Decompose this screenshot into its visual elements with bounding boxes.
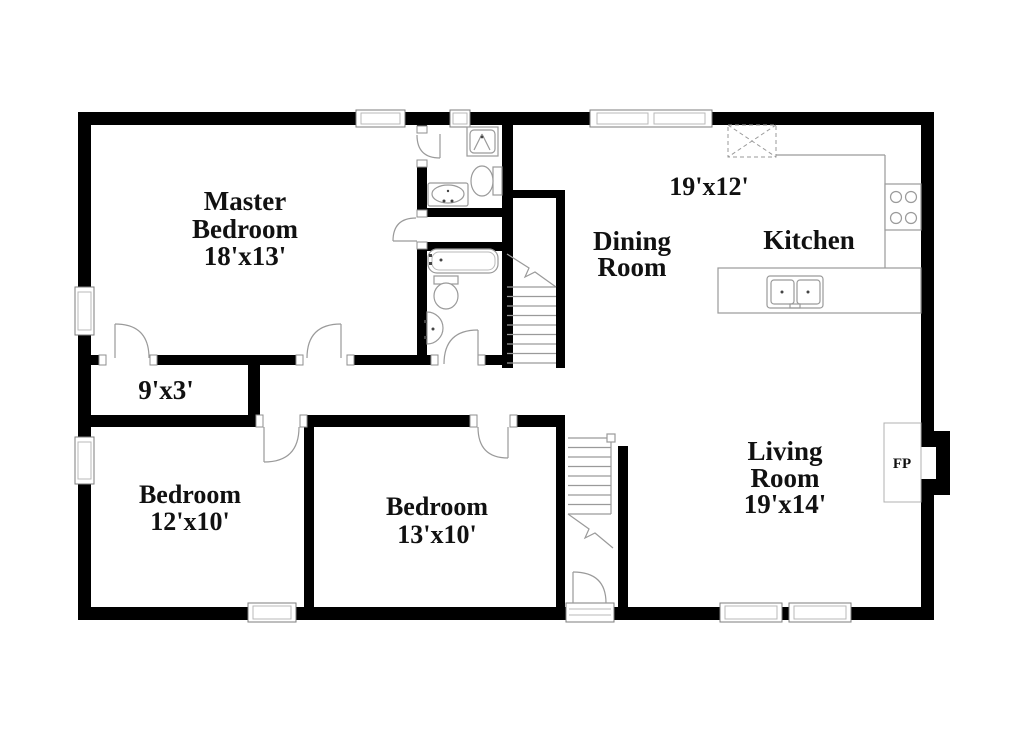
closet-dims: 9'x3' <box>138 375 194 405</box>
wall-living-west <box>618 446 628 607</box>
opening-master-closet <box>417 217 427 242</box>
stair-break-line <box>507 254 556 287</box>
window-left-bedroom2 <box>75 437 94 484</box>
window-left-master <box>75 287 94 335</box>
fireplace-bump-outer <box>936 447 950 479</box>
bedroom3-dims: 13'x10' <box>397 520 476 549</box>
window-top-master <box>356 110 405 127</box>
window-top-dining-double <box>590 110 712 127</box>
master-bath-fixtures <box>428 127 502 206</box>
kitchen-double-sink-icon <box>767 276 823 308</box>
opening-bedroom3 <box>477 415 510 427</box>
bedroom2-dims: 12'x10' <box>150 507 229 536</box>
wall-bedroom3-east <box>556 415 565 607</box>
opening-master-door-a <box>106 355 150 365</box>
window-bottom-bedroom2 <box>248 603 296 622</box>
fireplace-bump-bottom <box>921 479 950 495</box>
wall-bedrooms-divider <box>304 427 314 607</box>
fireplace: FP <box>884 423 921 502</box>
bathtub-icon <box>428 249 498 273</box>
floor-plan-drawing: FP Master Bedroom 18'x13' 19'x12' Dining… <box>0 0 1024 744</box>
toilet-icon <box>471 166 502 196</box>
front-door-threshold <box>566 603 614 622</box>
shower-icon <box>467 127 498 156</box>
refrigerator-dashed-box-icon <box>728 125 776 157</box>
master-door-b-swing <box>307 324 341 358</box>
bedroom2-door-swing <box>264 427 299 462</box>
basement-stairs <box>507 254 556 363</box>
living-room-label-line1: Living <box>747 436 823 466</box>
wall-bath1-south <box>417 208 513 217</box>
wall-exterior-top <box>78 112 934 125</box>
kitchen-fixtures <box>718 125 921 313</box>
stove-cooktop-icon <box>885 184 921 230</box>
master-bedroom-label-line2: Bedroom <box>192 214 299 244</box>
wall-stair-enclosure-east <box>556 190 565 368</box>
master-door-a-swing <box>115 324 149 358</box>
newel-post <box>607 434 615 442</box>
bedroom3-label: Bedroom <box>386 492 488 521</box>
stair-break-line <box>568 514 613 548</box>
window-bottom-living-2 <box>789 603 851 622</box>
wall-exterior-right-lower <box>921 495 934 620</box>
bedroom2-label: Bedroom <box>139 480 241 509</box>
hall-bath-fixtures <box>424 249 498 344</box>
wall-stair-enclosure-top <box>502 190 565 198</box>
master-bedroom-label-line1: Master <box>204 186 286 216</box>
window-bottom-living-1 <box>720 603 782 622</box>
vanity-sink-icon <box>428 183 468 206</box>
entry-stairs <box>568 434 615 548</box>
wall-exterior-left <box>78 112 91 620</box>
master-closet-door-swing <box>393 218 417 241</box>
pedestal-sink-icon <box>424 312 443 344</box>
fireplace-bump-top <box>921 431 950 447</box>
window-top-bath <box>450 110 470 127</box>
opening-bedroom2 <box>263 415 300 427</box>
kitchen-label: Kitchen <box>763 225 855 255</box>
floor-plan: FP Master Bedroom 18'x13' 19'x12' Dining… <box>0 0 1024 744</box>
bedroom3-door-swing <box>478 427 508 458</box>
living-room-dims: 19'x14' <box>744 489 827 519</box>
kitchen-dining-dims: 19'x12' <box>669 172 748 201</box>
fireplace-label: FP <box>893 456 911 472</box>
dining-room-label-line2: Room <box>598 252 667 282</box>
toilet-icon <box>434 276 458 309</box>
wall-exterior-right-upper <box>921 112 934 431</box>
front-door <box>566 572 614 622</box>
master-bedroom-dims: 18'x13' <box>204 241 287 271</box>
